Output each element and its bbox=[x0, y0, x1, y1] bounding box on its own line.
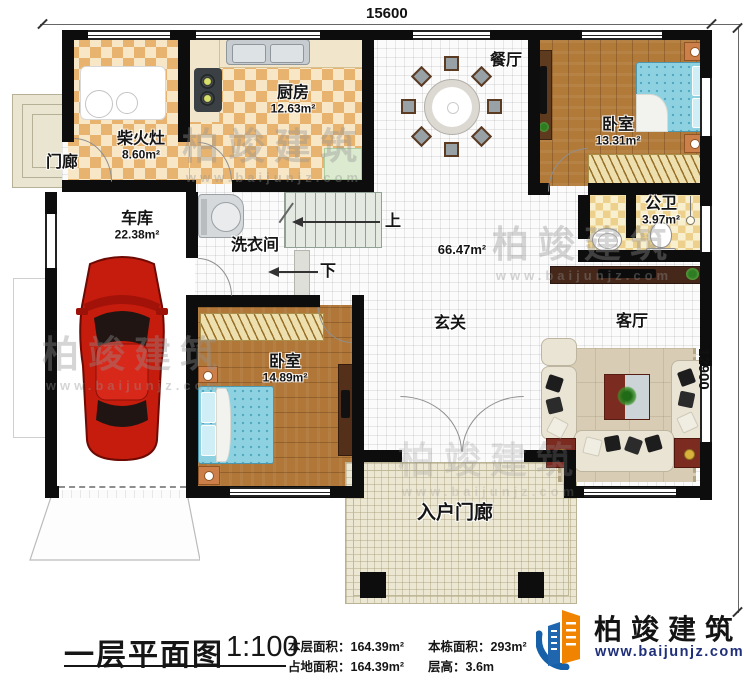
room-name: 柴火灶 bbox=[117, 130, 165, 148]
wall bbox=[528, 36, 540, 186]
washing-machine bbox=[198, 194, 244, 238]
wall bbox=[588, 183, 712, 195]
right-dimension-label: 12900 bbox=[695, 348, 712, 390]
window bbox=[584, 487, 676, 497]
label-foyer: 玄关 bbox=[434, 315, 466, 333]
window bbox=[230, 487, 330, 497]
brand-name: 柏竣建筑 bbox=[594, 608, 742, 648]
kitchen-stove bbox=[194, 68, 222, 112]
label-living: 客厅 bbox=[616, 313, 648, 331]
stat-value: 164.39m² bbox=[351, 660, 405, 674]
kitchen-mat bbox=[324, 148, 362, 180]
label-laundry: 洗衣间 bbox=[231, 237, 279, 255]
label-porch: 门廊 bbox=[46, 154, 78, 172]
stat-value: 164.39m² bbox=[351, 640, 405, 654]
label-garage: 车库22.38m² bbox=[115, 210, 160, 241]
window bbox=[700, 78, 712, 136]
stove-pot bbox=[85, 90, 113, 118]
label-entry-porch: 入户门廊 bbox=[417, 502, 493, 523]
wall bbox=[186, 296, 198, 498]
room-area: 13.31m² bbox=[596, 134, 641, 147]
dining-chair bbox=[444, 56, 459, 71]
room-area: 14.89m² bbox=[263, 371, 308, 384]
washer-controls bbox=[201, 199, 207, 235]
room-name: 卧室 bbox=[596, 116, 641, 134]
label-bathroom: 公卫3.97m² bbox=[642, 195, 680, 226]
tv bbox=[598, 269, 656, 278]
label-stairs-down: 下 bbox=[320, 263, 336, 281]
wall bbox=[178, 36, 190, 142]
stairs-up-arrow-line bbox=[302, 221, 380, 223]
dining-table bbox=[424, 79, 480, 135]
nightstand bbox=[198, 366, 218, 383]
room-area: 22.38m² bbox=[115, 228, 160, 241]
wall bbox=[578, 195, 590, 239]
window bbox=[196, 30, 320, 40]
wall bbox=[352, 295, 364, 492]
window bbox=[582, 30, 662, 40]
room-name: 门廊 bbox=[46, 154, 78, 171]
stat-label: 本层面积： bbox=[288, 640, 351, 654]
stat-label: 占地面积： bbox=[288, 660, 351, 674]
wall bbox=[186, 192, 198, 258]
label-bedroom-bottom: 卧室14.89m² bbox=[263, 353, 308, 384]
window bbox=[88, 30, 170, 40]
side-terrace bbox=[13, 278, 48, 438]
room-name: 厨房 bbox=[271, 84, 316, 102]
label-bedroom-top: 卧室13.31m² bbox=[596, 116, 641, 147]
wardrobe bbox=[588, 154, 702, 184]
room-name: 餐厅 bbox=[490, 52, 522, 69]
stat-height: 层高：3.6m bbox=[428, 656, 494, 675]
room-name: 入户门廊 bbox=[417, 502, 493, 523]
washer-drum bbox=[211, 202, 241, 232]
room-name: 洗衣间 bbox=[231, 237, 279, 254]
sofa-pillow bbox=[678, 391, 696, 409]
brand-logo-icon bbox=[536, 604, 590, 670]
plant bbox=[686, 268, 699, 280]
porch-column bbox=[518, 572, 544, 598]
pillow bbox=[201, 392, 216, 423]
bed-sheet bbox=[216, 388, 231, 462]
wall bbox=[62, 30, 74, 142]
dining-chair bbox=[444, 142, 459, 157]
bathroom-sink bbox=[592, 228, 622, 252]
room-area: 8.60m² bbox=[117, 148, 165, 161]
wall bbox=[232, 180, 374, 192]
stat-floor-area: 本层面积：164.39m² bbox=[288, 636, 404, 655]
lamp bbox=[686, 216, 695, 225]
stove-burner bbox=[200, 91, 215, 106]
pillow bbox=[201, 425, 216, 456]
stove-pot bbox=[116, 92, 138, 114]
stat-label: 本栋面积： bbox=[428, 640, 491, 654]
desk-monitor bbox=[341, 390, 350, 418]
room-name: 车库 bbox=[115, 210, 160, 228]
stat-value: 3.6m bbox=[466, 660, 495, 674]
room-area: 3.97m² bbox=[642, 213, 680, 226]
stairs-down: 下 bbox=[320, 263, 336, 280]
wall bbox=[578, 250, 712, 262]
sofa-chaise bbox=[541, 338, 577, 366]
plan-title: 一层平面图 bbox=[64, 630, 224, 674]
floor-plan-canvas: 15600 12900 bbox=[0, 0, 750, 680]
wall bbox=[352, 450, 402, 462]
stairs-down-arrowhead bbox=[268, 267, 279, 277]
stat-building-area: 本栋面积：293m² bbox=[428, 636, 527, 655]
dining-chair bbox=[401, 99, 416, 114]
right-dimension-line bbox=[738, 28, 739, 613]
sofa-pillow bbox=[604, 435, 621, 452]
nightstand bbox=[198, 466, 220, 485]
room-area: 12.63m² bbox=[271, 102, 316, 115]
room-name: 客厅 bbox=[616, 313, 648, 330]
wardrobe bbox=[200, 313, 324, 341]
stat-land-area: 占地面积：164.39m² bbox=[288, 656, 404, 675]
stairs-up: 上 bbox=[385, 213, 401, 230]
window bbox=[413, 30, 490, 40]
car bbox=[76, 248, 168, 464]
label-foyer-area: 66.47m² bbox=[438, 241, 486, 259]
stove-burner bbox=[200, 74, 215, 89]
window bbox=[45, 214, 57, 268]
tv bbox=[540, 66, 547, 114]
wall bbox=[45, 486, 59, 498]
label-firewood: 柴火灶8.60m² bbox=[117, 130, 165, 161]
dining-table-center bbox=[447, 102, 459, 114]
wall bbox=[528, 183, 550, 195]
room-area: 66.47m² bbox=[438, 242, 486, 257]
room-name: 公卫 bbox=[642, 195, 680, 213]
sink-bowl bbox=[598, 233, 618, 249]
wall bbox=[362, 36, 374, 192]
lamp-cord bbox=[690, 196, 691, 218]
bed-sheet bbox=[636, 94, 668, 132]
plant bbox=[539, 122, 549, 132]
top-dimension-label: 15600 bbox=[366, 5, 408, 22]
decor bbox=[684, 449, 695, 460]
sink-basin bbox=[232, 44, 266, 63]
top-dimension-line bbox=[40, 24, 740, 25]
room-name: 卧室 bbox=[263, 353, 308, 371]
kitchen-sink bbox=[226, 39, 310, 65]
stairs-down-arrow-line bbox=[278, 271, 318, 273]
stat-label: 层高： bbox=[428, 660, 466, 674]
stairs-up-arrowhead bbox=[292, 217, 303, 227]
brand-website: www.baijunjz.com bbox=[595, 644, 744, 660]
label-dining: 餐厅 bbox=[490, 52, 522, 70]
dining-chair bbox=[487, 99, 502, 114]
label-kitchen: 厨房12.63m² bbox=[271, 84, 316, 115]
wall bbox=[626, 192, 636, 238]
wall bbox=[186, 295, 320, 307]
title-underline bbox=[64, 665, 286, 667]
window bbox=[700, 206, 712, 252]
porch-column bbox=[360, 572, 386, 598]
room-name: 玄关 bbox=[434, 315, 466, 332]
label-stairs-up: 上 bbox=[385, 213, 401, 231]
stat-value: 293m² bbox=[491, 640, 527, 654]
sink-basin bbox=[270, 44, 304, 63]
garage-door-dashed bbox=[59, 486, 186, 488]
table-plant bbox=[617, 386, 637, 406]
